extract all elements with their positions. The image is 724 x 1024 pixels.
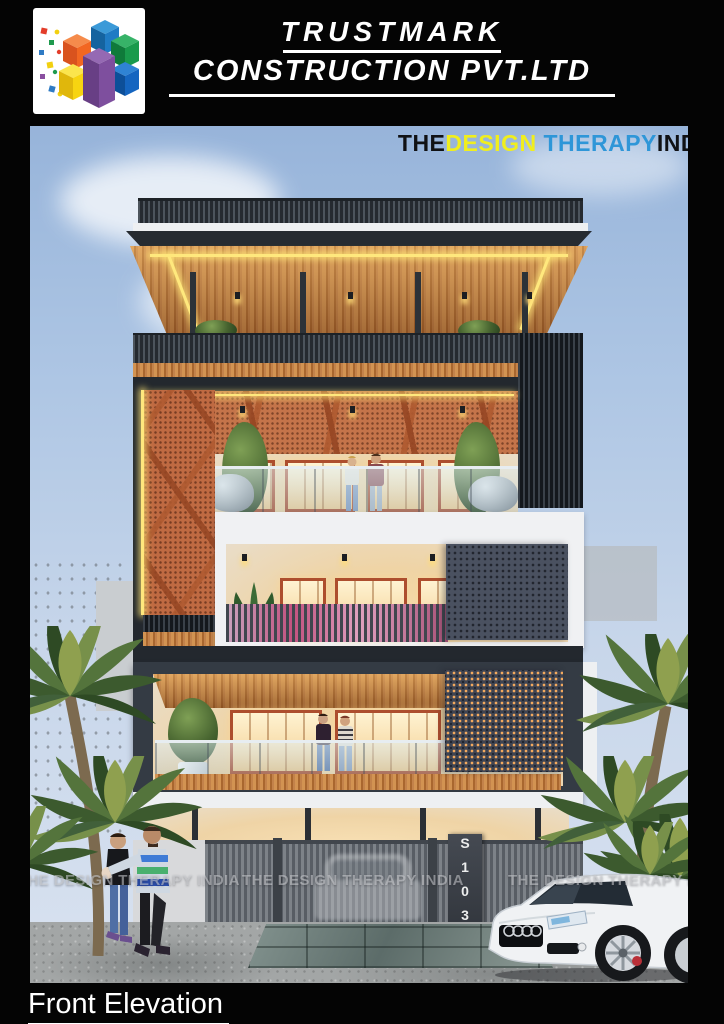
floor2-downlight — [342, 554, 347, 561]
scene-watermark-right: THE DESIGN THERAPY INDIA — [508, 872, 688, 889]
white-car — [485, 851, 688, 983]
company-logo — [33, 8, 145, 114]
company-title-block: TRUSTMARK CONSTRUCTION PVT.LTD — [160, 16, 624, 97]
car-behind-gate — [315, 854, 421, 924]
pendant-light — [527, 292, 532, 299]
scene-watermark-left: THE DESIGN THERAPY INDIA — [30, 872, 240, 889]
studio-watermark-the: THE — [398, 130, 446, 156]
terrace-wood-band — [133, 363, 520, 378]
floor3-downlight — [240, 406, 245, 413]
drawing-caption: Front Elevation — [28, 988, 229, 1024]
floor2-downlight — [242, 554, 247, 561]
roof-fascia — [126, 231, 592, 246]
pendant-light — [462, 292, 467, 299]
studio-watermark-design: DESIGN — [445, 130, 536, 156]
title-underline-2 — [169, 94, 615, 97]
ground-post — [305, 808, 311, 842]
title-underline-1 — [283, 50, 501, 53]
pedestrians — [90, 819, 190, 981]
floor3-downlight — [350, 406, 355, 413]
right-slat-column — [518, 333, 583, 508]
floor2-slat-railing — [226, 604, 448, 642]
pergola-led-strip-top2 — [470, 254, 568, 257]
pendant-light — [235, 292, 240, 299]
floor3-downlight — [460, 406, 465, 413]
roof-parapet-railing — [138, 198, 583, 223]
floor3-glass-railing — [210, 466, 518, 514]
pergola-column — [300, 272, 306, 334]
company-name-line1: TRUSTMARK — [160, 16, 624, 48]
pergola-column — [415, 272, 421, 334]
pendant-light — [348, 292, 353, 299]
pergola-led-strip-top — [150, 254, 470, 257]
floor2-downlight — [430, 554, 435, 561]
pergola-column — [522, 272, 528, 334]
pergola-column — [190, 272, 196, 334]
studio-watermark-india: INDIA — [657, 130, 688, 156]
studio-watermark-therapy: THERAPY — [537, 130, 657, 156]
terrace-railing — [133, 333, 583, 363]
floor3-top-frame — [133, 377, 518, 391]
studio-watermark: THEDESIGN THERAPYINDIA — [398, 130, 688, 157]
presentation-sheet: TRUSTMARK CONSTRUCTION PVT.LTD THEDESIGN… — [0, 0, 724, 1024]
scene-watermark-center: THE DESIGN THERAPY INDIA — [242, 872, 464, 889]
pergola-wood-ceiling — [130, 246, 588, 334]
roof-white-band — [133, 223, 588, 231]
company-name-line2: CONSTRUCTION PVT.LTD — [160, 55, 624, 88]
elevation-render: THEDESIGN THERAPYINDIA — [30, 126, 688, 983]
ground-post — [420, 808, 426, 842]
colorful-cubes-logo-icon — [33, 8, 145, 114]
